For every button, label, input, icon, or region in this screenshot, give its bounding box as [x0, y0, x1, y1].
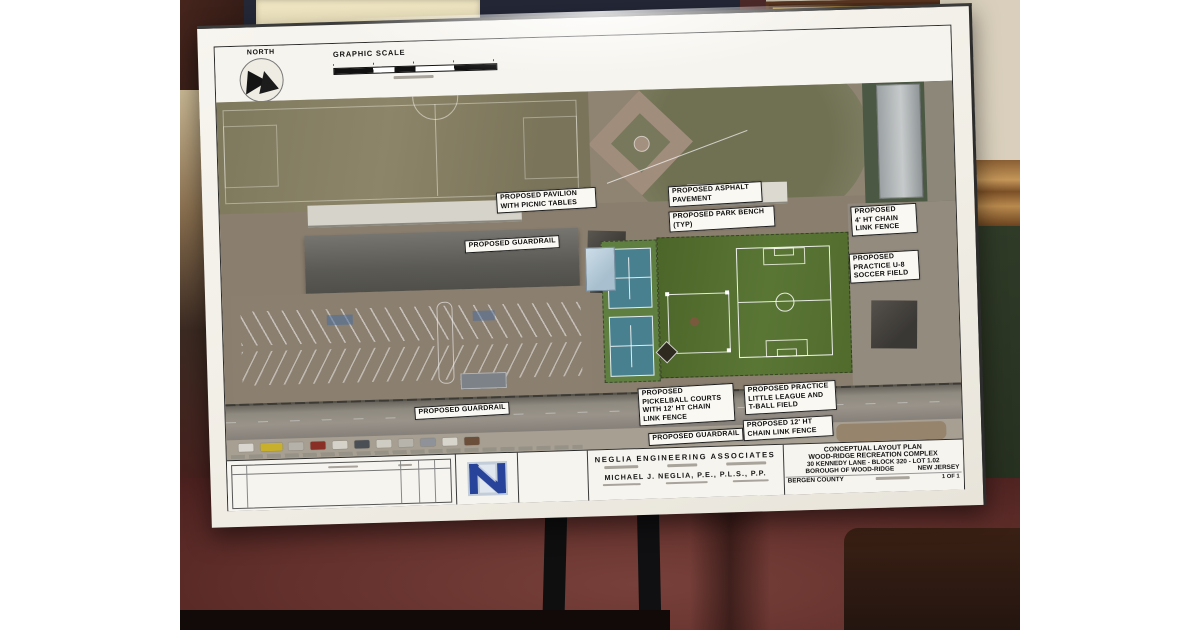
revisions-table — [231, 459, 452, 510]
plan-label-pickleball: PROPOSED PICKELBALL COURTS WITH 12' HT C… — [637, 383, 735, 427]
proposed-field — [656, 232, 852, 379]
sheet-number: 1 OF 1 — [942, 473, 960, 480]
parking-lot — [230, 285, 593, 404]
penalty-box-left — [223, 125, 279, 189]
project-block: CONCEPTUAL LAYOUT PLAN WOOD-RIDGE RECREA… — [785, 441, 962, 494]
parking-island — [436, 302, 454, 384]
parking-stripes-row2 — [242, 342, 583, 386]
u8-center-circle — [775, 292, 795, 312]
base-2 — [725, 290, 729, 294]
titleblock-divider — [455, 455, 457, 505]
plan-border-frame: NORTH GRAPHIC SCALE — [214, 25, 965, 512]
scene-root: { "plan": { "north_label": "NORTH", "gra… — [0, 0, 1200, 630]
titleblock-divider — [517, 453, 519, 503]
base-1 — [665, 292, 669, 296]
parked-car — [354, 440, 369, 448]
bleacher-zone — [862, 81, 956, 204]
north-arrow-icon — [239, 57, 284, 102]
handicap-mark-2 — [473, 310, 495, 321]
bleacher-walkway — [924, 81, 956, 202]
base-3 — [727, 348, 731, 352]
u8-goal-bottom-inner — [777, 348, 797, 357]
penalty-box-right — [523, 116, 579, 180]
paver-patch — [460, 372, 506, 389]
project-county: BERGEN COUNTY — [788, 476, 844, 485]
plan-label-fence-4ft: PROPOSED 4' HT CHAIN LINK FENCE — [850, 203, 918, 236]
north-label: NORTH — [237, 48, 285, 56]
plan-label-little-league: PROPOSED PRACTICE LITTLE LEAGUE AND T-BA… — [744, 380, 838, 415]
parked-car — [398, 439, 413, 447]
scale-caption-bar — [394, 75, 434, 79]
easel-base-shadow — [180, 610, 670, 630]
parked-car — [288, 442, 303, 450]
neglia-logo-n — [465, 458, 510, 499]
parked-car — [260, 443, 282, 452]
firm-block: NEGLIA ENGINEERING ASSOCIATES MICHAEL J.… — [589, 447, 782, 499]
u8-goal-top-inner — [774, 247, 794, 256]
neglia-logo — [465, 458, 510, 499]
handicap-mark-1 — [327, 315, 353, 326]
parked-car — [442, 437, 457, 445]
pickleball-court-2 — [609, 316, 655, 377]
bleacher-structure — [876, 84, 923, 199]
plan-label-u8-soccer: PROPOSED PRACTICE U-8 SOCCER FIELD — [849, 250, 921, 284]
parked-car — [420, 438, 435, 446]
court2-service-line — [630, 325, 632, 367]
lane-markings — [226, 400, 962, 423]
proposed-pavilion-roof — [585, 247, 616, 292]
tball-baselines — [667, 292, 731, 354]
parking-stripes-row1 — [240, 302, 581, 346]
parked-car — [310, 441, 325, 449]
letterbox-left — [0, 0, 180, 630]
graphic-scale-label: GRAPHIC SCALE — [333, 48, 406, 59]
parked-car — [332, 441, 347, 449]
letterbox-right — [1020, 0, 1200, 630]
site-plan-poster: NORTH GRAPHIC SCALE — [197, 3, 987, 528]
parked-car — [238, 444, 253, 452]
project-state: NEW JERSEY — [917, 464, 959, 472]
outbuilding-roof — [871, 300, 917, 348]
u8-soccer-outline — [736, 245, 833, 358]
court1-service-line — [628, 257, 630, 299]
chair-armrest-wood — [844, 528, 1020, 630]
parked-car — [376, 439, 391, 447]
parked-car — [464, 437, 479, 445]
